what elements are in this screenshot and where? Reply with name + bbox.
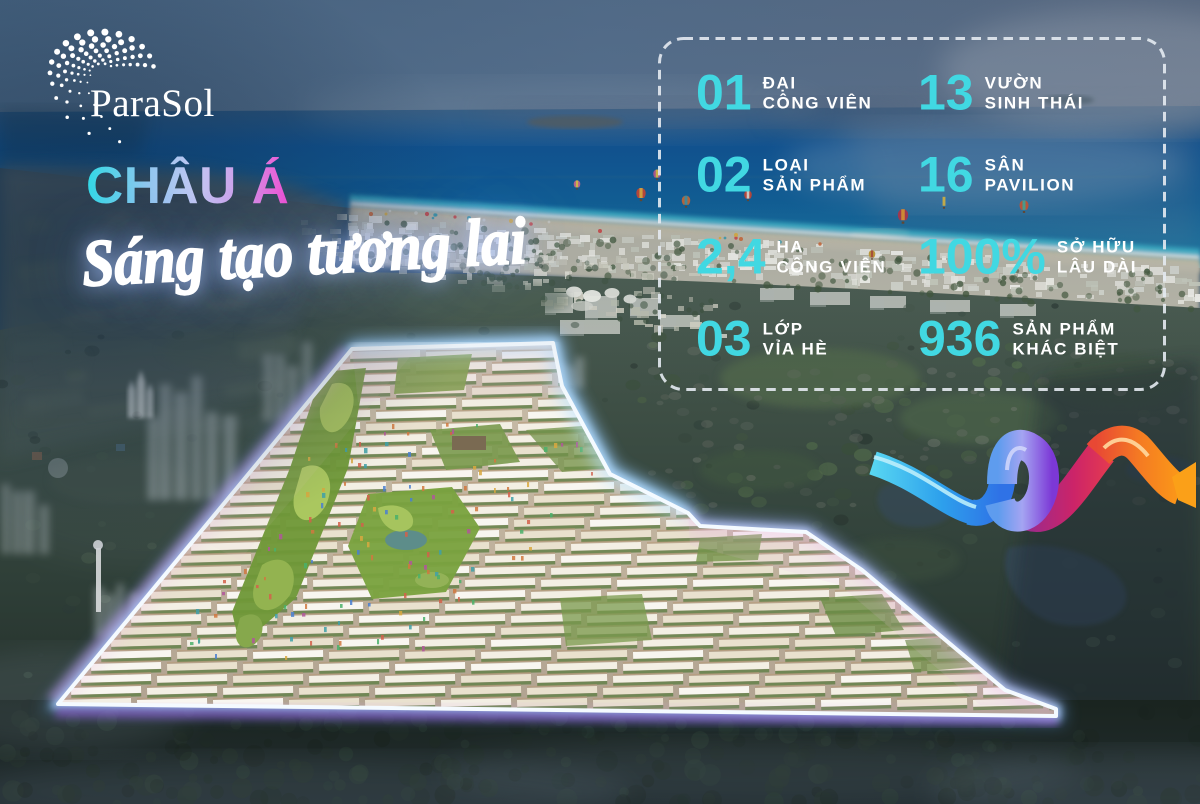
- svg-text:ParaSol: ParaSol: [90, 82, 215, 125]
